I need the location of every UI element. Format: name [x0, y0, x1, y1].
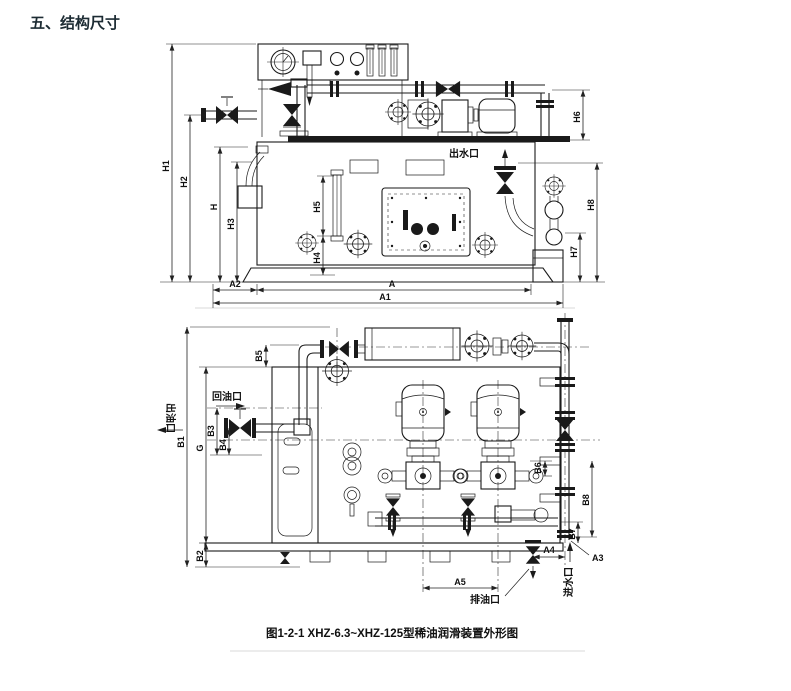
deck-plate	[288, 136, 570, 142]
deck-valve-icon	[283, 104, 301, 126]
small-gauge-icon	[331, 53, 344, 66]
riser-flange	[322, 356, 352, 386]
pump-units-front	[385, 98, 517, 137]
suction-header	[368, 506, 558, 530]
dim-label-h2: H2	[179, 176, 189, 188]
port-label-oil-drain: 排油口	[470, 593, 500, 606]
ball-joint-icon	[546, 229, 562, 245]
dim-label-h5: H5	[312, 201, 322, 213]
dim-label-h7: H7	[569, 246, 579, 258]
deck-piping	[258, 79, 554, 136]
baseplate	[195, 543, 563, 567]
figure-caption: 图1-2-1 XHZ-6.3~XHZ-125型稀油润滑装置外形图	[266, 626, 518, 640]
drain-valve-assembly	[525, 540, 541, 579]
oil-cooler	[365, 328, 460, 360]
port-label-water-outlet: 出水口	[449, 147, 479, 160]
dim-label-b6: B6	[533, 462, 543, 474]
water-outlet-assembly	[494, 149, 566, 282]
dim-label-b5: B5	[254, 350, 264, 362]
oil-tank-front	[238, 142, 553, 282]
dim-label-h: H	[209, 204, 219, 211]
small-drain-valve-icon	[280, 552, 290, 564]
dim-label-g: G	[195, 444, 205, 451]
dim-label-a1: A1	[379, 292, 391, 302]
oil-return-valve-icon	[229, 419, 251, 437]
ball-joint-icon	[545, 201, 563, 219]
dim-label-a5: A5	[454, 577, 466, 587]
dim-label-h4: H4	[312, 252, 322, 264]
dim-label-a2: A2	[229, 279, 241, 289]
discharge-valve-icon	[329, 341, 349, 357]
top-piping	[299, 328, 569, 425]
oil-level-gauge	[331, 170, 343, 241]
dim-label-h1: H1	[161, 160, 171, 172]
thermometer-head	[303, 51, 321, 65]
dim-label-a4: A4	[543, 545, 555, 555]
dim-label-b8: B8	[581, 494, 591, 506]
water-outlet-valve-icon	[496, 172, 514, 194]
dim-label-b1: B1	[176, 436, 186, 448]
page-title: 五、结构尺寸	[30, 14, 120, 32]
small-gauge-icon	[351, 53, 364, 66]
drain-valve-icon	[526, 546, 540, 564]
port-label-oil-return: 回油口	[212, 390, 242, 403]
oil-return-assembly	[224, 409, 310, 438]
dim-label-h6: H6	[572, 111, 582, 123]
inspection-cover	[382, 188, 470, 256]
front-view: 出水口 H1 H2 H H3 H5 H4	[160, 44, 605, 308]
pipe-valve-icon	[436, 81, 460, 97]
dim-label-b7: B7	[567, 528, 577, 540]
dim-label-b4: B4	[218, 439, 228, 451]
dim-label-b3: B3	[206, 425, 216, 437]
dim-label-h3: H3	[226, 218, 236, 230]
dim-label-b2: B2	[195, 550, 205, 562]
left-outlet-valve	[201, 97, 257, 124]
motor-front	[479, 99, 515, 133]
oil-tank-plan	[272, 367, 560, 543]
water-valve-icon	[556, 419, 574, 441]
plan-view: 回油口 出油口 排油口 进水口 B1 G B2 B5 B3	[157, 313, 604, 606]
grease-nozzle-icon	[268, 82, 291, 96]
dim-label-a3: A3	[592, 553, 604, 563]
technical-drawing-page: 五、结构尺寸 图1-2-1 XHZ-6.3~XHZ-125型稀油润滑装置外形图	[0, 0, 791, 691]
dim-label-a: A	[389, 279, 396, 289]
dim-label-h8: H8	[586, 199, 596, 211]
indicator-tubes	[366, 45, 398, 76]
port-label-water-inlet: 进水口	[562, 567, 575, 597]
plan-view-dimensions: B1 G B2 B5 B3 B4 B6 B8 B7	[176, 327, 604, 588]
